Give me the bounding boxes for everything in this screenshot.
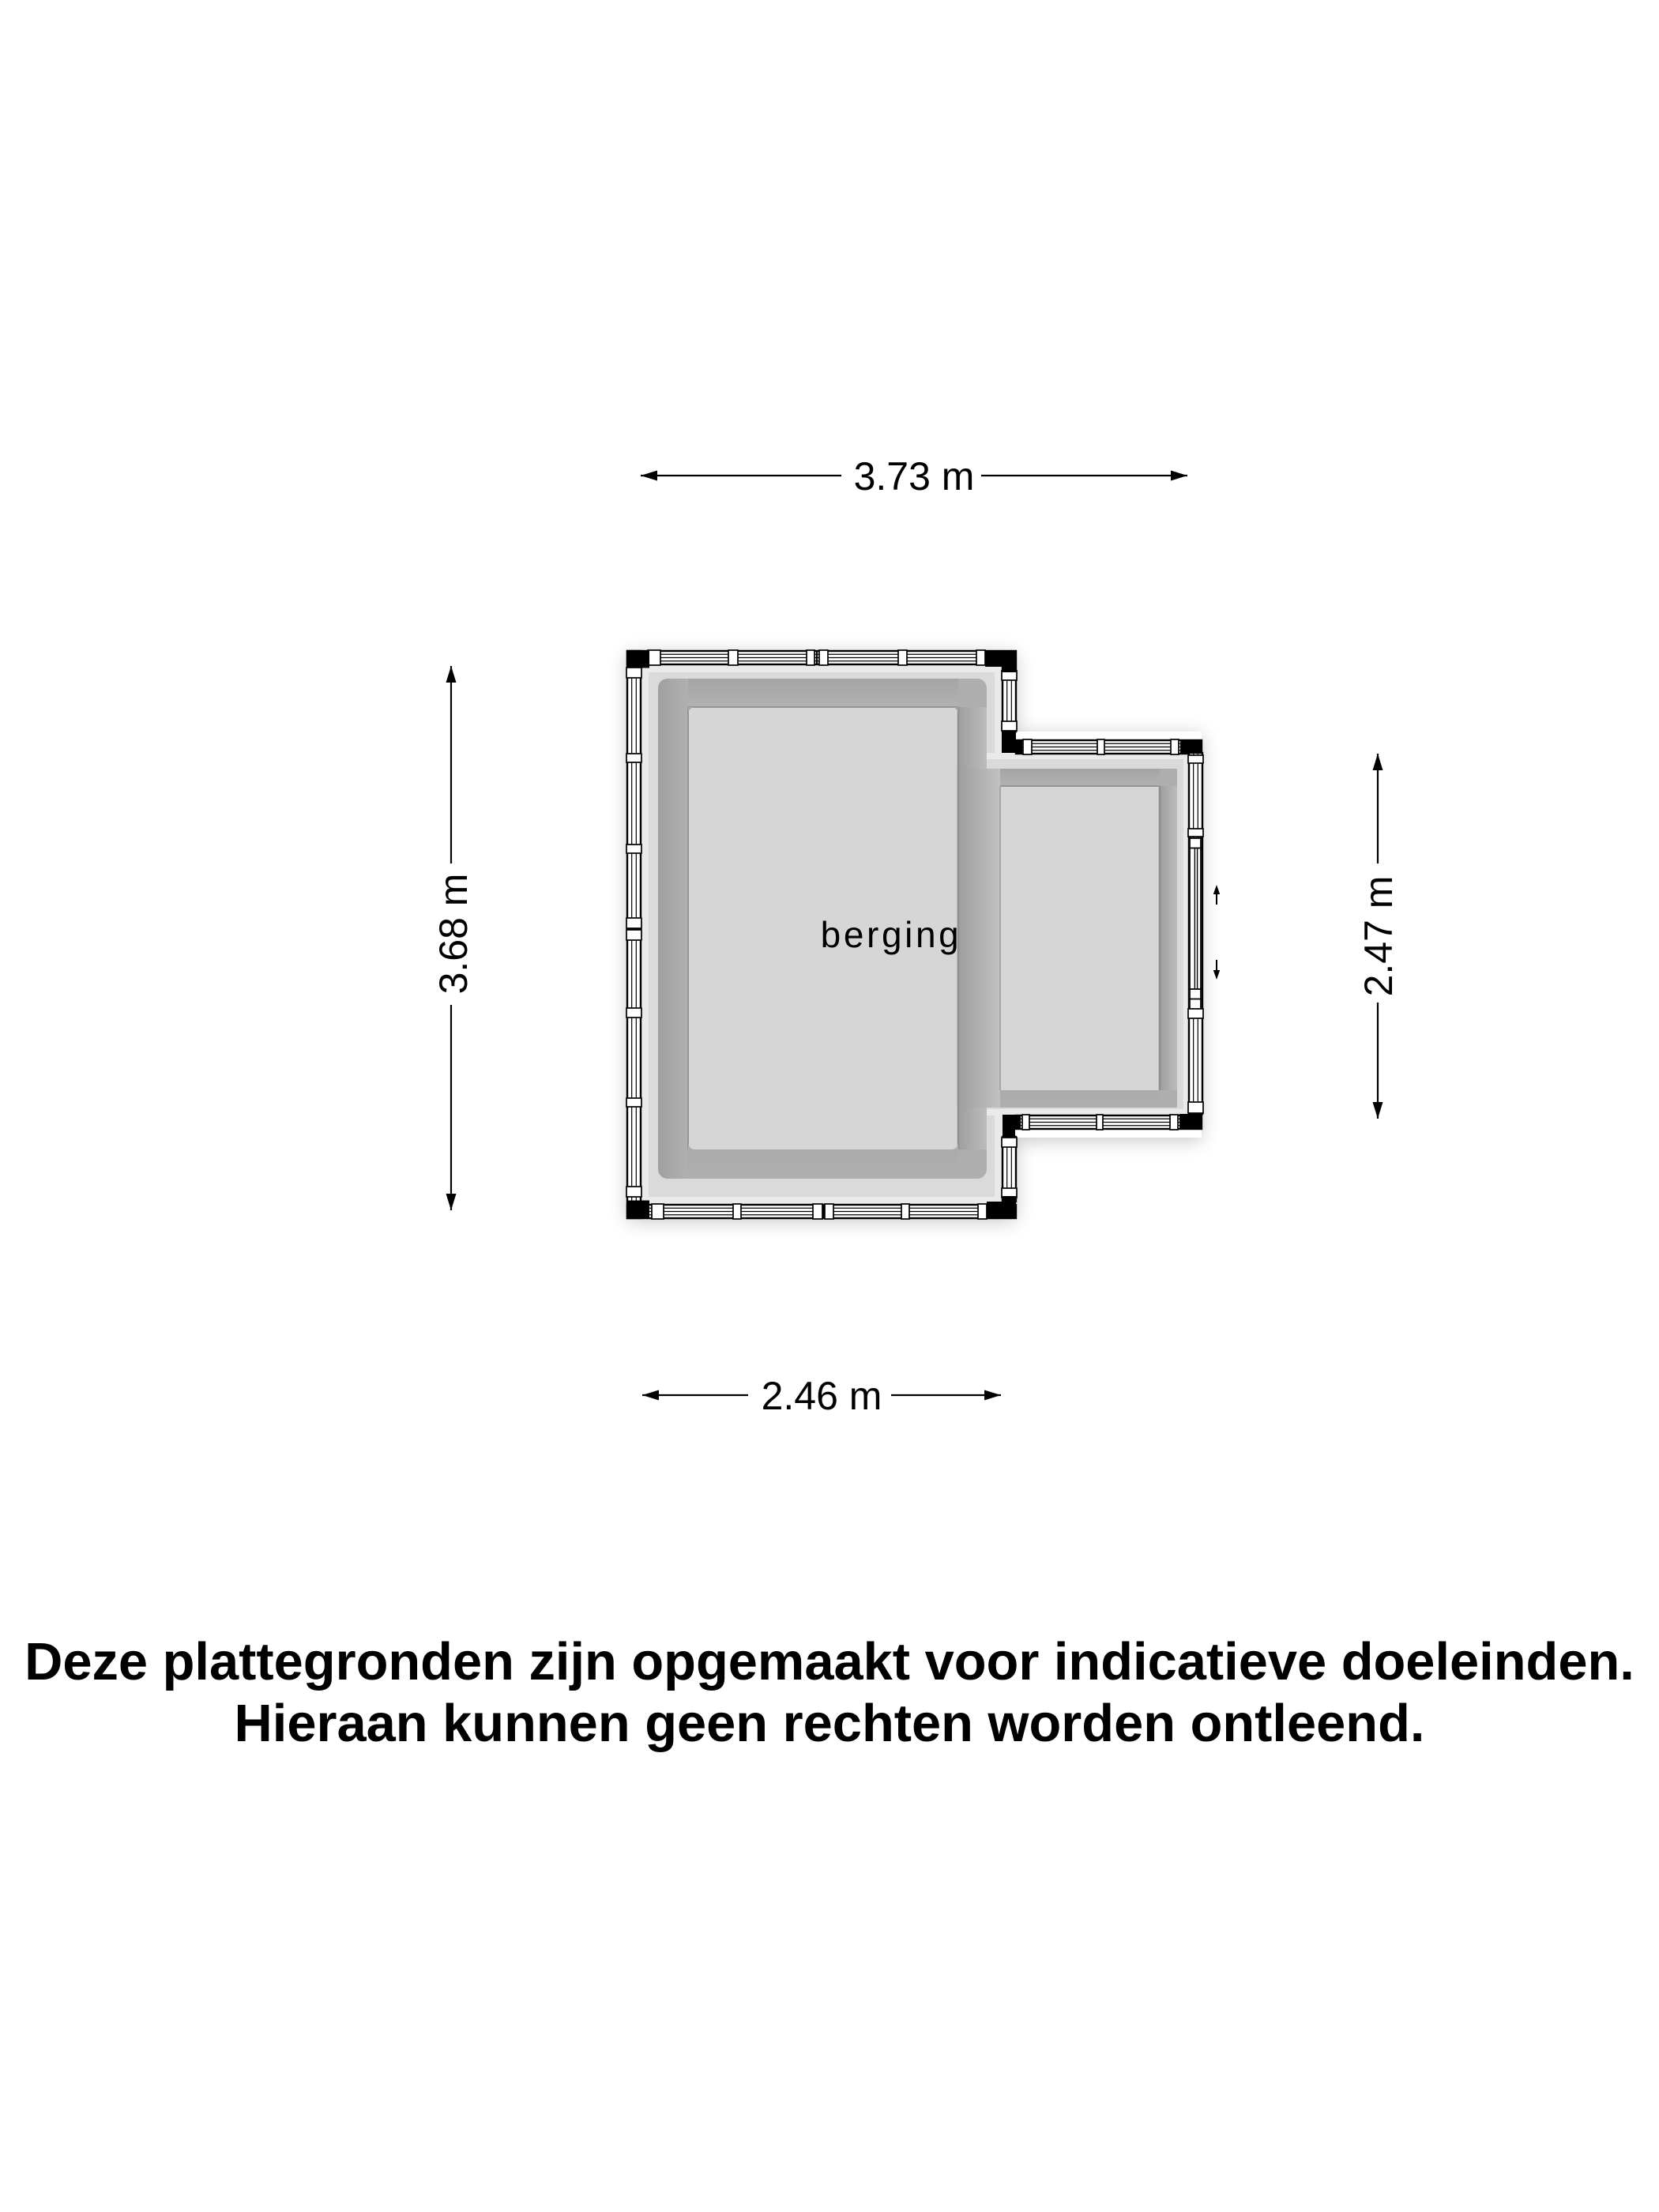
svg-text:berging: berging	[821, 914, 962, 955]
svg-text:Hieraan kunnen geen rechten wo: Hieraan kunnen geen rechten worden ontle…	[235, 1695, 1425, 1753]
svg-text:2.47 m: 2.47 m	[1356, 876, 1401, 997]
svg-text:Deze plattegronden zijn opgema: Deze plattegronden zijn opgemaakt voor i…	[24, 1633, 1635, 1691]
svg-text:3.68 m: 3.68 m	[431, 874, 476, 995]
svg-text:2.46 m: 2.46 m	[762, 1374, 882, 1418]
svg-text:3.73 m: 3.73 m	[854, 454, 975, 498]
